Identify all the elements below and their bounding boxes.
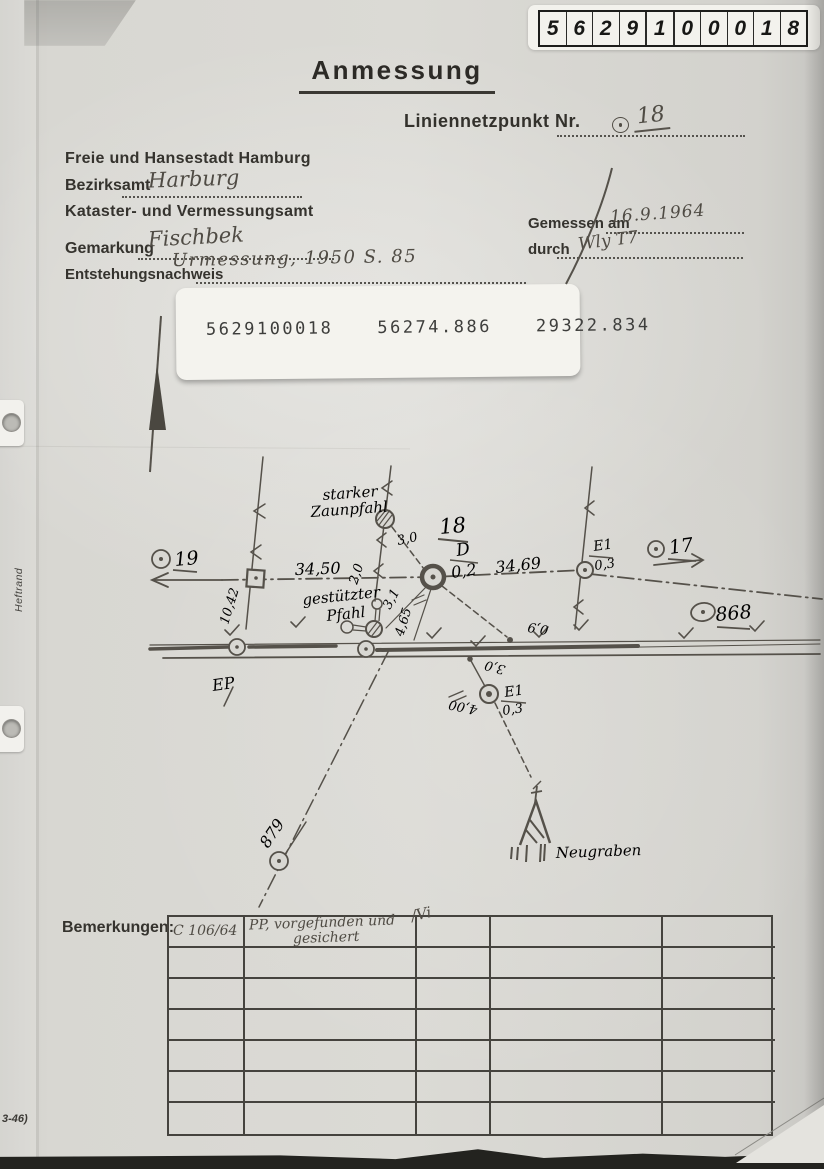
label-underlines [173, 539, 750, 703]
page-title: Anmessung [299, 55, 495, 94]
table-cell [417, 917, 491, 948]
north-arrow [149, 316, 166, 472]
point-18-label: 18 [438, 513, 467, 539]
table-cell [169, 1010, 245, 1041]
table-cell [491, 948, 663, 979]
sketch-points [152, 510, 716, 870]
table-cell [491, 1103, 663, 1134]
main-point-symbol [422, 566, 444, 588]
table-cell [245, 979, 417, 1010]
table-cell [417, 1010, 491, 1041]
id-digit: 2 [593, 12, 620, 45]
scan-bottom-edge [0, 1147, 824, 1169]
d-value: 0,2 [450, 560, 478, 582]
table-cell [491, 1041, 663, 1072]
table-cell [417, 1041, 491, 1072]
id-digit: 5 [540, 12, 567, 45]
point-symbol-icon [612, 117, 629, 133]
table-cell [663, 1103, 775, 1134]
tie-0-9: 0,9 [527, 618, 550, 636]
table-cell [491, 979, 663, 1010]
remark-case-number: C 106/64 [173, 923, 237, 939]
low-4-00: 4,00 [447, 696, 479, 717]
sticker-coord-x: 56274.886 [377, 317, 492, 378]
point868-symbol [690, 601, 717, 623]
table-cell [491, 917, 663, 948]
point-879-label: 879 [256, 815, 289, 851]
low-3-0: 3,0 [483, 657, 507, 677]
square-point-symbol [246, 569, 264, 587]
table-cell [245, 1041, 417, 1072]
sticker-coord-y: 29322.834 [536, 315, 651, 376]
coordinate-sticker: 5629100018 56274.886 29322.834 [176, 284, 581, 380]
point-id-digit-box: 5 6 2 9 1 0 0 0 1 8 [538, 10, 808, 47]
office-line: Kataster- und Vermessungsamt [65, 203, 313, 221]
zaunpfahl-label-2: Zaunpfahl [309, 498, 389, 521]
id-digit: 9 [620, 12, 648, 45]
table-cell [417, 1103, 491, 1134]
table-cell: PP, vorgefunden und gesichert /Vi [245, 917, 417, 948]
e1b-value: 0,3 [501, 701, 524, 719]
zaunpfahl-label-1: starker [322, 482, 379, 504]
table-cell [417, 1072, 491, 1103]
durch-line [557, 257, 743, 259]
sticker-point-id: 5629100018 [206, 318, 334, 379]
table-cell [663, 1072, 775, 1103]
gemarkung-label: Gemarkung [65, 240, 154, 258]
bezirksamt-value: Harburg [148, 165, 240, 192]
id-digit: 1 [754, 12, 781, 45]
check-marks [225, 617, 764, 646]
remarks-table: C 106/64 PP, vorgefunden und gesichert /… [167, 915, 773, 1136]
point-19-label: 19 [174, 547, 200, 571]
dist-10-42: 10,42 [217, 586, 242, 626]
zaunpfahl-symbol [376, 510, 394, 528]
table-cell [417, 948, 491, 979]
scanned-form-page: 5 6 2 9 1 0 0 0 1 8 Anmessung Liniennetz… [0, 0, 824, 1169]
e1-value: 0,3 [593, 556, 616, 574]
road-point-symbol [358, 641, 374, 657]
table-cell [663, 948, 775, 979]
authority-line: Freie und Hansestadt Hamburg [65, 150, 311, 168]
id-digit: 1 [647, 12, 675, 45]
table-cell [663, 917, 775, 948]
entstehung-value: Urmessung, 1950 S. 85 [172, 246, 418, 271]
bezirksamt-line [122, 196, 302, 198]
table-cell [245, 1010, 417, 1041]
punch-hole [3, 720, 20, 737]
table-cell [169, 979, 245, 1010]
d-label: D [454, 539, 472, 561]
table-cell [663, 979, 775, 1010]
table-cell [169, 1103, 245, 1134]
e1b-label: E1 [502, 682, 524, 701]
table-cell [491, 1072, 663, 1103]
point17-symbol [648, 541, 664, 557]
margin-label: Heftrand [13, 568, 25, 612]
tie-2-0: 2,0 [346, 562, 367, 587]
entstehung-line [196, 282, 526, 284]
table-cell [245, 1103, 417, 1134]
table-cell [169, 948, 245, 979]
point-number-line [557, 135, 745, 137]
dist-34-69: 34,69 [494, 553, 542, 577]
tie-4-65: 4,65 [392, 606, 415, 639]
table-cell [169, 1041, 245, 1072]
table-cell [245, 1072, 417, 1103]
e1-point-symbol [577, 562, 593, 578]
paper-crease [0, 446, 410, 450]
bezirksamt-label: Bezirksamt [65, 177, 150, 195]
id-digit: 0 [675, 12, 702, 45]
church-icon [511, 781, 550, 862]
gemessen-value: 16.9.1964 [609, 201, 706, 228]
id-digit: 8 [781, 12, 807, 45]
sketch-labels: starker Zaunpfahl gestützter Pfahl 3,0 1… [174, 482, 753, 862]
point-17-label: 17 [668, 534, 696, 559]
remark-text-line2: gesichert [293, 929, 360, 947]
neugraben-label: Neugraben [555, 841, 642, 862]
dist-34-50: 34,50 [294, 558, 340, 579]
left-edge-crease [36, 0, 39, 1169]
point-number-value: 18 [632, 101, 671, 133]
table-cell [491, 1010, 663, 1041]
table-cell [169, 1072, 245, 1103]
punch-hole [3, 414, 20, 431]
tie-3-0: 3,0 [396, 530, 419, 549]
point879-symbol [270, 852, 288, 870]
table-cell [417, 979, 491, 1010]
point-868-label: 868 [715, 601, 753, 626]
right-edge-shadow [804, 0, 824, 1169]
point19-symbol [152, 550, 170, 568]
table-cell [663, 1041, 775, 1072]
punch-hole-tab [0, 706, 24, 752]
id-digit: 0 [701, 12, 728, 45]
gemarkung-value: Fischbek [147, 223, 244, 252]
e1-lower-point-symbol [480, 685, 498, 703]
id-digit: 0 [728, 12, 755, 45]
remarks-label: Bemerkungen: [62, 919, 174, 937]
table-cell [663, 1010, 775, 1041]
table-cell: C 106/64 [169, 917, 245, 948]
tie-3-1: 3,1 [380, 587, 403, 612]
scan-corner-shadow [24, 0, 136, 46]
point-id-label: 5 6 2 9 1 0 0 0 1 8 [528, 5, 820, 50]
e1-label: E1 [591, 536, 613, 555]
sketch-lines [150, 457, 822, 907]
punch-hole-tab [0, 400, 24, 446]
form-number: 3-46) [2, 1113, 28, 1125]
table-cell [245, 948, 417, 979]
pfahl-symbol [366, 621, 382, 637]
id-digit: 6 [567, 12, 594, 45]
point-number-label: Liniennetzpunkt Nr. [404, 111, 581, 132]
pfahl-label-2: Pfahl [325, 603, 367, 625]
pfahl-label-1: gestützter [302, 583, 382, 609]
road-point-symbol [229, 639, 245, 655]
durch-label: durch [528, 241, 570, 258]
ep-label: EP [210, 673, 236, 695]
